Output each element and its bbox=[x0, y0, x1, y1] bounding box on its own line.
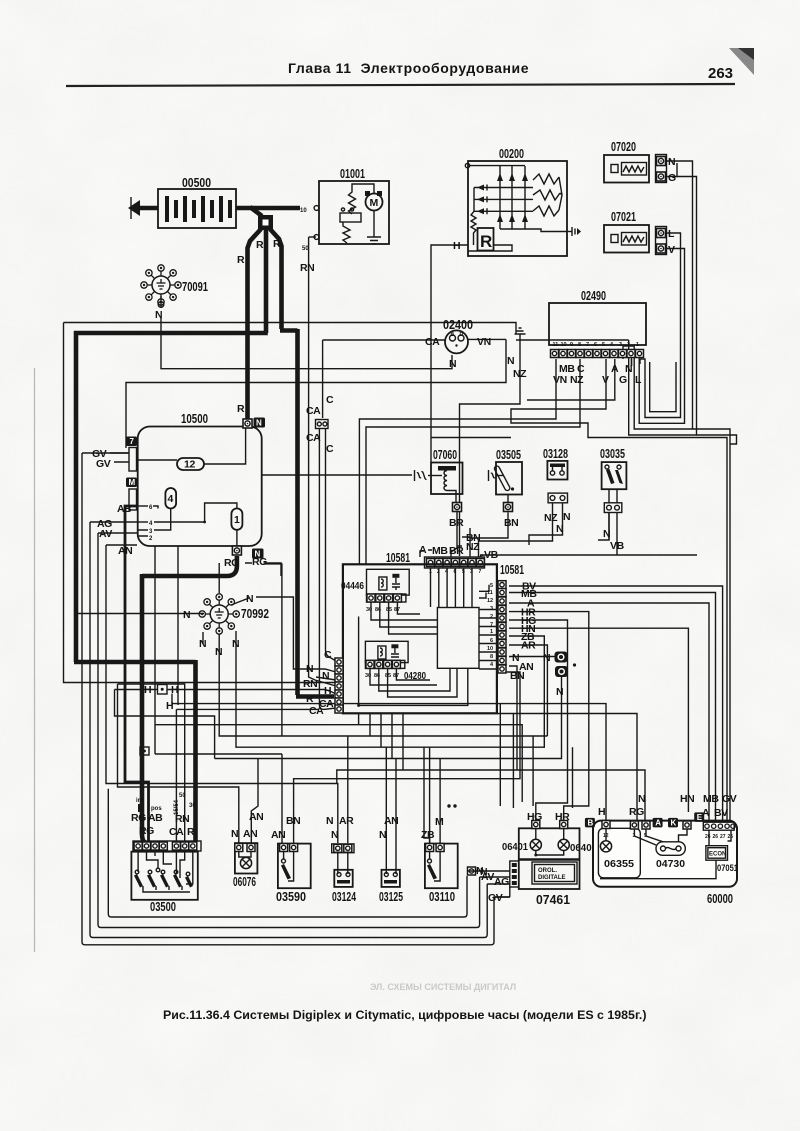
svg-text:R: R bbox=[237, 254, 245, 266]
svg-text:1: 1 bbox=[429, 569, 432, 575]
svg-text:6: 6 bbox=[454, 569, 457, 575]
svg-text:CA: CA bbox=[306, 432, 321, 444]
svg-text:A: A bbox=[655, 819, 661, 828]
svg-text:N: N bbox=[331, 829, 338, 841]
svg-text:5: 5 bbox=[462, 569, 465, 575]
svg-text:M: M bbox=[435, 816, 444, 828]
svg-text:1: 1 bbox=[234, 514, 240, 526]
svg-text:5: 5 bbox=[602, 342, 605, 348]
svg-text:int: int bbox=[136, 798, 143, 804]
svg-text:ЭЛ. СХЕМЫ СИСТЕМЫ ДИГИТАЛ: ЭЛ. СХЕМЫ СИСТЕМЫ ДИГИТАЛ bbox=[370, 982, 516, 992]
svg-text:03128: 03128 bbox=[543, 447, 568, 461]
svg-text:10500: 10500 bbox=[181, 412, 208, 426]
svg-text:AR: AR bbox=[521, 640, 536, 652]
svg-text:NZ: NZ bbox=[570, 374, 584, 386]
svg-text:AN: AN bbox=[118, 545, 132, 557]
svg-text:G: G bbox=[619, 374, 627, 386]
svg-text:4: 4 bbox=[168, 493, 174, 505]
svg-text:263: 263 bbox=[708, 65, 733, 82]
svg-text:N: N bbox=[215, 646, 222, 658]
svg-text:H: H bbox=[144, 684, 151, 696]
svg-text:2: 2 bbox=[627, 342, 630, 348]
svg-text:7: 7 bbox=[586, 342, 589, 348]
svg-text:CA: CA bbox=[425, 336, 440, 348]
svg-text:11: 11 bbox=[487, 590, 493, 596]
svg-text:03035: 03035 bbox=[600, 447, 625, 461]
svg-text:RG: RG bbox=[139, 825, 154, 837]
svg-text:ZB: ZB bbox=[421, 829, 435, 841]
svg-text:10581: 10581 bbox=[386, 551, 410, 565]
svg-text:GV: GV bbox=[96, 458, 111, 470]
svg-text:C: C bbox=[326, 394, 334, 406]
svg-text:M: M bbox=[370, 197, 379, 209]
svg-text:AN: AN bbox=[243, 828, 257, 840]
svg-text:8: 8 bbox=[490, 654, 493, 660]
svg-text:10: 10 bbox=[487, 646, 493, 652]
svg-text:9: 9 bbox=[570, 342, 573, 348]
svg-text:VB: VB bbox=[484, 549, 499, 561]
svg-text:AB: AB bbox=[117, 503, 132, 515]
svg-text:3: 3 bbox=[490, 606, 493, 612]
svg-text:N: N bbox=[556, 523, 563, 535]
svg-text:N: N bbox=[322, 670, 329, 682]
svg-text:7: 7 bbox=[130, 437, 135, 446]
svg-text:VN: VN bbox=[553, 374, 567, 386]
svg-text:03505: 03505 bbox=[496, 448, 521, 462]
svg-text:H: H bbox=[598, 806, 605, 818]
svg-text:AR: AR bbox=[339, 815, 354, 827]
svg-text:07051: 07051 bbox=[717, 863, 739, 874]
svg-text:N: N bbox=[449, 358, 456, 370]
svg-text:Глава 11 Электрооборудование: Глава 11 Электрооборудование bbox=[288, 60, 529, 76]
svg-text:N: N bbox=[256, 419, 262, 428]
svg-text:30: 30 bbox=[189, 803, 196, 809]
svg-text:N: N bbox=[232, 638, 239, 650]
svg-text:1: 1 bbox=[636, 342, 639, 348]
svg-text:2: 2 bbox=[437, 569, 440, 575]
svg-text:N: N bbox=[379, 829, 386, 841]
svg-text:12: 12 bbox=[487, 598, 493, 604]
svg-text:CA: CA bbox=[309, 705, 324, 717]
svg-text:6: 6 bbox=[594, 342, 597, 348]
svg-text:AN: AN bbox=[384, 815, 398, 827]
svg-text:AN: AN bbox=[249, 811, 263, 823]
svg-text:N: N bbox=[507, 355, 514, 367]
svg-text:B: B bbox=[588, 819, 594, 828]
svg-text:11: 11 bbox=[553, 342, 559, 348]
svg-text:R: R bbox=[237, 403, 245, 415]
svg-text:N: N bbox=[603, 528, 610, 540]
svg-text:MB: MB bbox=[432, 545, 448, 557]
svg-text:ECON: ECON bbox=[709, 852, 726, 858]
svg-text:CA: CA bbox=[306, 405, 321, 417]
svg-text:L: L bbox=[635, 374, 642, 386]
svg-text:07020: 07020 bbox=[611, 140, 636, 154]
svg-text:NZ: NZ bbox=[466, 541, 480, 553]
svg-text:50: 50 bbox=[302, 246, 309, 252]
svg-text:Рис.11.36.4 Системы Digiplex: Рис.11.36.4 Системы Digiplex и Citymatic… bbox=[163, 1008, 646, 1022]
svg-text:RG: RG bbox=[224, 557, 239, 569]
svg-text:07060: 07060 bbox=[433, 448, 457, 462]
svg-text:GV: GV bbox=[722, 793, 737, 805]
svg-text:M: M bbox=[129, 478, 136, 487]
svg-text:04730: 04730 bbox=[656, 859, 685, 870]
svg-text:03124: 03124 bbox=[332, 890, 356, 904]
svg-text:07461: 07461 bbox=[536, 893, 570, 907]
svg-text:50: 50 bbox=[179, 793, 186, 799]
svg-text:N: N bbox=[556, 686, 563, 698]
svg-text:V: V bbox=[668, 244, 675, 256]
svg-text:N: N bbox=[246, 593, 253, 605]
svg-text:AG: AG bbox=[494, 876, 509, 888]
svg-text:H: H bbox=[324, 685, 331, 697]
svg-text:GV: GV bbox=[488, 892, 503, 904]
svg-text:02490: 02490 bbox=[581, 289, 606, 303]
svg-text:1: 1 bbox=[490, 629, 493, 635]
svg-text:N: N bbox=[199, 638, 206, 650]
svg-text:3: 3 bbox=[470, 569, 473, 575]
svg-text:03500: 03500 bbox=[150, 900, 176, 914]
svg-text:06355: 06355 bbox=[604, 859, 634, 870]
svg-text:AB: AB bbox=[148, 812, 163, 824]
svg-text:DIGITALE: DIGITALE bbox=[538, 875, 566, 881]
svg-text:BN: BN bbox=[510, 670, 524, 682]
svg-text:N: N bbox=[155, 309, 162, 321]
svg-text:R: R bbox=[187, 826, 195, 838]
svg-text:BN: BN bbox=[504, 517, 518, 529]
svg-text:R: R bbox=[273, 238, 281, 250]
svg-text:L: L bbox=[668, 228, 675, 240]
svg-text:A: A bbox=[419, 544, 427, 556]
svg-text:R: R bbox=[256, 239, 264, 251]
svg-text:C: C bbox=[324, 649, 332, 661]
svg-text:12: 12 bbox=[184, 459, 195, 471]
svg-text:RG: RG bbox=[629, 806, 644, 818]
svg-text:N: N bbox=[231, 828, 238, 840]
svg-text:N: N bbox=[543, 652, 550, 664]
svg-text:RN: RN bbox=[300, 262, 314, 274]
svg-text:C: C bbox=[326, 443, 334, 455]
svg-text:03590: 03590 bbox=[276, 890, 306, 904]
svg-text:BN: BN bbox=[286, 815, 300, 827]
svg-text:6: 6 bbox=[490, 638, 493, 644]
svg-text:5: 5 bbox=[490, 583, 493, 589]
svg-text:CA: CA bbox=[169, 826, 184, 838]
svg-text:N: N bbox=[668, 156, 675, 168]
svg-text:01001: 01001 bbox=[340, 167, 365, 181]
svg-text:7: 7 bbox=[479, 569, 482, 575]
svg-text:BV: BV bbox=[714, 807, 728, 819]
svg-text:N: N bbox=[563, 511, 570, 523]
svg-text:N: N bbox=[183, 609, 190, 621]
svg-text:06401: 06401 bbox=[502, 841, 528, 853]
svg-text:AV: AV bbox=[481, 871, 494, 883]
svg-text:V: V bbox=[602, 374, 609, 386]
svg-text:OROL.: OROL. bbox=[538, 868, 557, 874]
svg-text:RG: RG bbox=[252, 556, 267, 568]
svg-text:N: N bbox=[326, 815, 333, 827]
svg-text:VB: VB bbox=[610, 540, 625, 552]
svg-text:D: D bbox=[460, 332, 464, 338]
svg-text:NZ: NZ bbox=[513, 368, 527, 380]
svg-text:N: N bbox=[638, 793, 645, 805]
svg-text:AN: AN bbox=[271, 829, 285, 841]
svg-text:03110: 03110 bbox=[429, 890, 455, 904]
svg-text:RN: RN bbox=[303, 678, 317, 690]
svg-text:A: A bbox=[611, 363, 619, 375]
svg-text:10581: 10581 bbox=[500, 563, 524, 577]
svg-text:7: 7 bbox=[490, 622, 493, 628]
svg-text:8: 8 bbox=[578, 342, 581, 348]
svg-text:06076: 06076 bbox=[233, 875, 256, 889]
svg-text:03125: 03125 bbox=[379, 890, 403, 904]
svg-text:BR: BR bbox=[449, 517, 464, 529]
svg-text:10: 10 bbox=[300, 208, 307, 214]
svg-text:70091: 70091 bbox=[182, 280, 208, 294]
svg-text:BR: BR bbox=[449, 545, 464, 557]
svg-text:K: K bbox=[671, 819, 677, 828]
svg-text:70992: 70992 bbox=[241, 607, 269, 621]
svg-text:E: E bbox=[697, 813, 703, 822]
svg-text:04446: 04446 bbox=[341, 580, 364, 592]
svg-text:00200: 00200 bbox=[499, 147, 524, 161]
svg-text:VN: VN bbox=[477, 336, 491, 348]
svg-text:HN: HN bbox=[680, 793, 694, 805]
svg-text:07021: 07021 bbox=[611, 210, 636, 224]
svg-text:N: N bbox=[306, 663, 313, 675]
svg-text:2: 2 bbox=[490, 614, 493, 620]
svg-text:00500: 00500 bbox=[182, 176, 211, 190]
svg-text:26: 26 bbox=[713, 834, 719, 840]
svg-text:R: R bbox=[306, 693, 314, 705]
svg-text:MB: MB bbox=[703, 793, 719, 805]
svg-text:RG: RG bbox=[131, 812, 146, 824]
svg-text:AV: AV bbox=[99, 528, 112, 540]
svg-text:RN: RN bbox=[175, 813, 189, 825]
svg-text:4: 4 bbox=[445, 569, 448, 575]
svg-text:3: 3 bbox=[619, 342, 622, 348]
svg-text:H: H bbox=[453, 240, 460, 252]
svg-text:27: 27 bbox=[720, 834, 726, 840]
svg-text:R: R bbox=[480, 232, 492, 251]
svg-text:B: B bbox=[451, 332, 455, 338]
svg-text:10: 10 bbox=[561, 342, 567, 348]
svg-text:26: 26 bbox=[705, 834, 711, 840]
svg-text:G: G bbox=[668, 172, 676, 184]
svg-text:60000: 60000 bbox=[707, 892, 733, 906]
